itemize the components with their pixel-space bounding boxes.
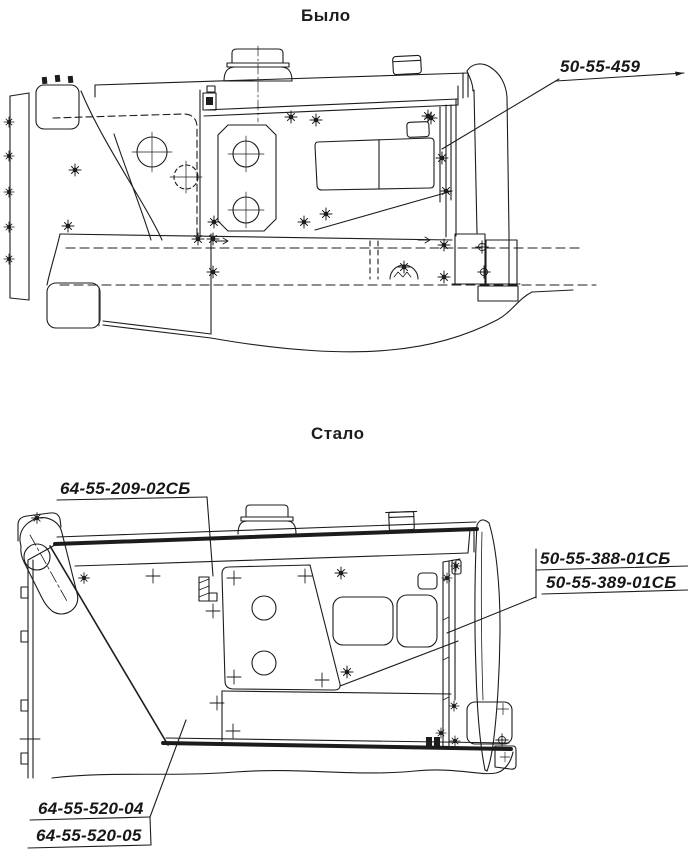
callout-50-55-389-01: 50-55-389-01СБ bbox=[546, 573, 677, 593]
before-drawing bbox=[4, 46, 684, 352]
lower-sill bbox=[163, 691, 511, 749]
left-edge bbox=[20, 545, 55, 778]
hood-bolts bbox=[42, 75, 74, 84]
vent-grille-after bbox=[333, 573, 458, 686]
callout-64-55-520-04: 64-55-520-04 bbox=[38, 799, 144, 819]
vent-grille bbox=[315, 122, 434, 190]
latch-part bbox=[199, 577, 217, 601]
panel-joint bbox=[200, 86, 216, 237]
callout-50-55-459: 50-55-459 bbox=[560, 57, 640, 77]
center-panel bbox=[146, 565, 353, 738]
break-line bbox=[52, 752, 513, 778]
rear-bracket bbox=[467, 702, 516, 769]
cab-pillar-after bbox=[475, 520, 500, 771]
callout-64-55-520-05: 64-55-520-05 bbox=[36, 826, 142, 846]
cab-pillar bbox=[467, 64, 509, 284]
lower-panel bbox=[47, 234, 573, 352]
after-title: Стало bbox=[311, 424, 365, 444]
parts-catalog-figure: Было Стало 50-55-459 64-55-209-02СБ 50-5… bbox=[0, 0, 688, 858]
before-title: Было bbox=[301, 6, 351, 26]
mount-strip-after bbox=[426, 559, 461, 747]
hood-top bbox=[42, 73, 468, 116]
callout-64-55-209-02: 64-55-209-02СБ bbox=[60, 479, 191, 499]
mount-strip bbox=[315, 99, 456, 237]
access-panel bbox=[132, 125, 276, 231]
leader-50-55-459 bbox=[442, 72, 684, 150]
radiator-front bbox=[4, 85, 162, 300]
filler-cap bbox=[224, 46, 292, 122]
breather-cap-after bbox=[386, 511, 418, 530]
hinge-assembly bbox=[18, 513, 89, 614]
hidden-contour-dashed bbox=[53, 114, 596, 285]
callout-50-55-388-01: 50-55-388-01СБ bbox=[540, 549, 671, 569]
support-bracket bbox=[216, 234, 520, 301]
bolts-before bbox=[192, 110, 452, 283]
breather-cap bbox=[393, 55, 422, 74]
